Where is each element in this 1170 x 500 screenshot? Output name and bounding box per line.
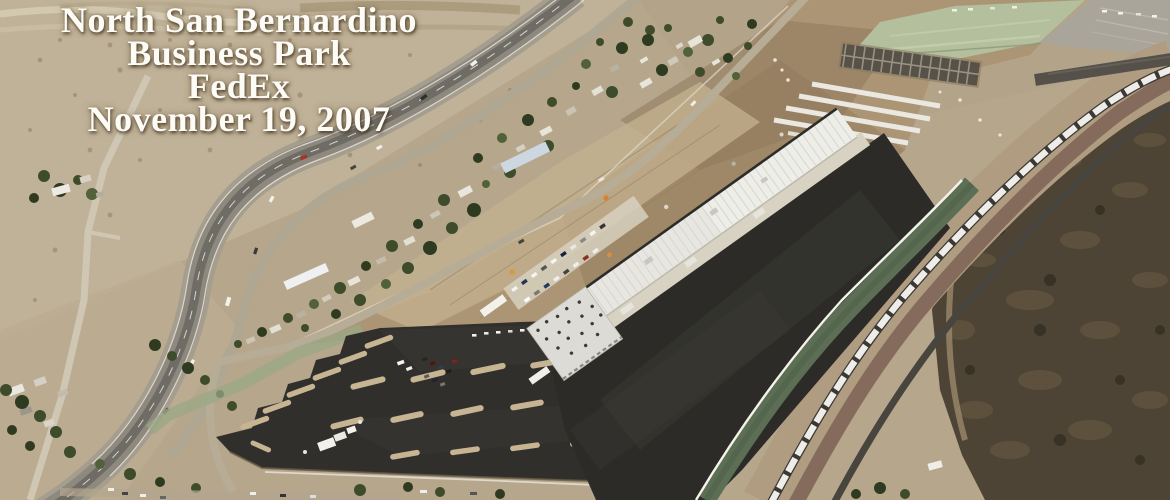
construction-equipment xyxy=(603,195,608,200)
aerial-photo: North San Bernardino Business Park FedEx… xyxy=(0,0,1170,500)
construction-equipment xyxy=(509,269,514,274)
photo-caption: North San Bernardino Business Park FedEx… xyxy=(0,0,478,136)
caption-line-4: November 19, 2007 xyxy=(0,103,478,136)
